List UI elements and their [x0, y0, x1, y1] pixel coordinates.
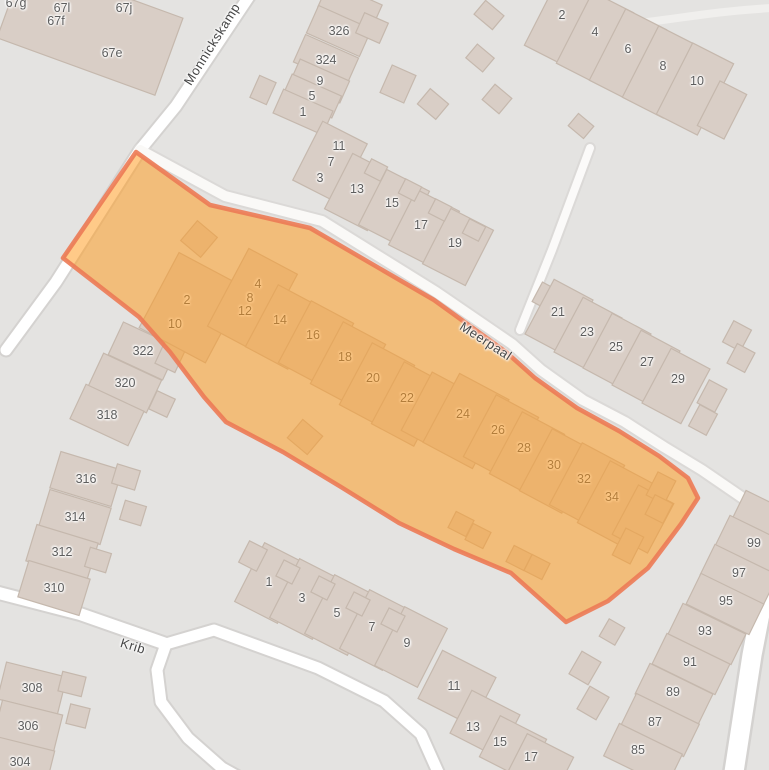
house-number-label: 99	[747, 537, 761, 550]
house-number-label: 8	[660, 60, 667, 73]
house-number-label: 11	[333, 140, 346, 153]
house-number-label: 87	[648, 716, 662, 729]
house-number-label: 91	[683, 656, 697, 669]
house-number-label: 23	[580, 326, 594, 339]
house-number-label: 308	[22, 682, 43, 695]
house-number-label: 4	[592, 26, 599, 39]
house-number-label: 6	[625, 43, 632, 56]
house-number-label: 314	[65, 511, 86, 524]
house-number-label: 304	[10, 756, 31, 769]
house-number-label: 312	[52, 546, 73, 559]
house-number-label: 3	[299, 592, 306, 605]
house-number-label: 1	[300, 106, 307, 119]
street-label-krib: Krib	[119, 636, 147, 656]
house-number-label: 19	[448, 237, 462, 250]
house-number-label: 322	[133, 345, 154, 358]
house-number-label: 10	[690, 75, 704, 88]
house-number-label: 5	[334, 607, 341, 620]
house-number-label: 67g	[6, 0, 27, 9]
house-number-label: 7	[328, 156, 335, 169]
house-number-label: 5	[309, 90, 316, 103]
house-number-label: 15	[385, 197, 399, 210]
house-number-label: 7	[369, 621, 376, 634]
house-number-label: 13	[350, 183, 364, 196]
street-label-monnickskamp: Monnickskamp	[182, 1, 243, 88]
house-number-label: 1	[266, 576, 273, 589]
house-number-label: 326	[329, 25, 350, 38]
house-number-label: 9	[317, 75, 324, 88]
house-number-label: 316	[76, 473, 97, 486]
house-number-label: 17	[414, 219, 428, 232]
house-number-label: 11	[448, 680, 461, 693]
house-number-label: 320	[115, 377, 136, 390]
house-number-label: 67l	[54, 2, 71, 15]
house-number-label: 29	[671, 373, 685, 386]
house-number-label: 67e	[102, 47, 123, 60]
house-number-label: 306	[18, 720, 39, 733]
house-number-label: 17	[524, 751, 538, 764]
house-number-label: 2	[559, 9, 566, 22]
house-number-label: 67f	[47, 15, 64, 28]
house-number-label: 13	[466, 721, 480, 734]
house-number-label: 318	[97, 409, 118, 422]
house-number-label: 324	[316, 54, 337, 67]
house-number-label: 9	[404, 637, 411, 650]
house-number-label: 27	[640, 356, 654, 369]
house-number-label: 3	[317, 172, 324, 185]
house-number-label: 95	[719, 595, 733, 608]
map-canvas[interactable]: 21048121416182022242628303234 67g67l67j6…	[0, 0, 769, 770]
label-layer: 67g67l67j67f67e3263249511173131517192468…	[0, 0, 769, 770]
house-number-label: 21	[551, 306, 565, 319]
house-number-label: 85	[631, 744, 645, 757]
house-number-label: 97	[732, 567, 746, 580]
house-number-label: 310	[44, 582, 65, 595]
house-number-label: 89	[666, 686, 680, 699]
house-number-label: 67j	[116, 2, 133, 15]
house-number-label: 93	[698, 625, 712, 638]
street-label-meerpaal: Meerpaal	[458, 319, 515, 362]
house-number-label: 25	[609, 341, 623, 354]
house-number-label: 15	[493, 736, 507, 749]
